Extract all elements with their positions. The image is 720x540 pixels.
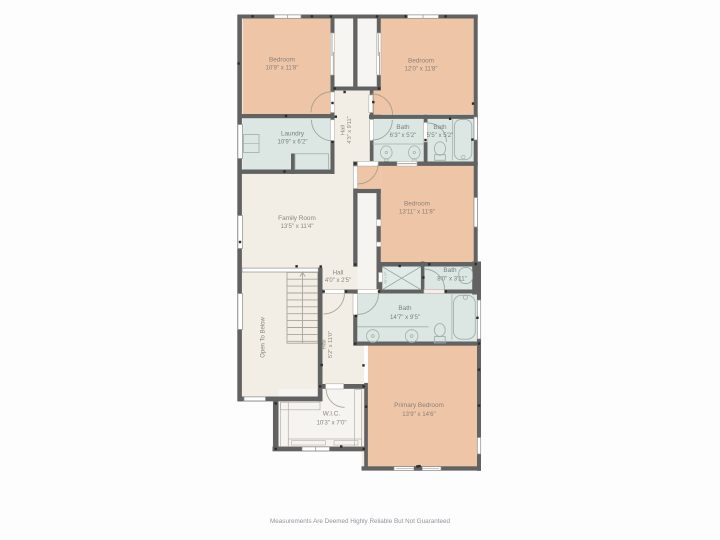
svg-text:Bedroom: Bedroom (408, 58, 434, 65)
svg-text:Measurements Are Deemed Highly: Measurements Are Deemed Highly Reliable … (270, 518, 450, 525)
svg-text:6'3" x 5'2": 6'3" x 5'2" (390, 132, 417, 139)
svg-text:Hall: Hall (322, 340, 328, 350)
svg-text:10'9" x 11'8": 10'9" x 11'8" (266, 65, 299, 72)
svg-text:Bath: Bath (398, 305, 412, 312)
svg-text:Family Room: Family Room (278, 215, 316, 222)
svg-text:10'9" x 6'2": 10'9" x 6'2" (277, 139, 307, 146)
svg-text:Primary Bedroom: Primary Bedroom (394, 402, 444, 409)
svg-text:10'3" x 7'0": 10'3" x 7'0" (316, 420, 346, 427)
svg-text:Laundry: Laundry (281, 131, 305, 138)
svg-text:Bedroom: Bedroom (404, 201, 430, 208)
svg-text:Bath: Bath (396, 124, 410, 131)
svg-text:W.I.C.: W.I.C. (323, 411, 341, 418)
svg-text:12'0" x 11'8": 12'0" x 11'8" (405, 66, 438, 73)
svg-text:13'11" x 11'8": 13'11" x 11'8" (399, 209, 435, 216)
svg-text:5'2" x 11'0": 5'2" x 11'0" (328, 331, 334, 358)
svg-text:Bath: Bath (433, 124, 447, 131)
svg-text:4'3" x 9'11": 4'3" x 9'11" (347, 116, 353, 143)
svg-text:13'9" x 14'6": 13'9" x 14'6" (402, 411, 435, 418)
svg-text:4'0" x 2'5": 4'0" x 2'5" (325, 278, 351, 284)
svg-text:Bedroom: Bedroom (269, 57, 295, 64)
svg-text:5'5" x 5'2": 5'5" x 5'2" (427, 132, 454, 139)
svg-text:Hall: Hall (341, 125, 347, 135)
svg-text:13'5" x 11'4": 13'5" x 11'4" (281, 223, 314, 230)
svg-text:14'7" x 9'5": 14'7" x 9'5" (390, 314, 420, 321)
svg-text:Open To Below: Open To Below (261, 317, 267, 358)
svg-text:8'0" x 3'11": 8'0" x 3'11" (437, 276, 467, 283)
svg-text:Hall: Hall (333, 270, 344, 277)
svg-text:Bath: Bath (443, 267, 457, 274)
svg-text:4'9" x 2'7": 4'9" x 2'7" (384, 271, 388, 283)
